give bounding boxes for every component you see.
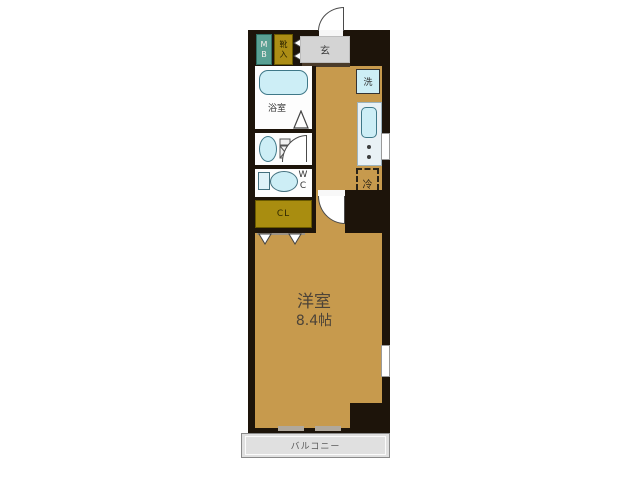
entrance-door-arc-icon: [318, 7, 344, 31]
main-room-label: 洋室: [268, 292, 360, 313]
closet-label: CL: [277, 209, 290, 219]
main-room-size: 8.4帖: [268, 313, 360, 330]
closet-area: CL: [255, 200, 312, 228]
entrance-area: 玄: [300, 36, 350, 63]
toilet-label: WC: [297, 170, 309, 193]
kitchen-sink-icon: [361, 107, 377, 138]
wall-left-column: [312, 66, 316, 233]
kitchen-window: [381, 133, 390, 160]
main-room-label-block: 洋室 8.4帖: [268, 292, 360, 330]
stove-burner-icon: [367, 145, 371, 149]
shoe-cabinet-label: 靴入: [279, 40, 289, 58]
washing-machine-label: 洗: [363, 75, 372, 88]
bathroom-label: 浴室: [258, 101, 296, 114]
balcony-window-sill: [278, 426, 304, 431]
floorplan-canvas: MB 靴入 玄 浴室 WC CL: [0, 0, 640, 480]
washbasin-icon: [259, 136, 277, 162]
room-side-window: [381, 345, 390, 377]
meter-box-label: MB: [260, 40, 269, 58]
wall-corridor-room: [345, 190, 390, 233]
bathtub-icon: [259, 70, 308, 95]
toilet-bowl-icon: [270, 171, 298, 192]
toilet-tank-icon: [258, 172, 270, 190]
refrigerator-label: 冷: [363, 176, 373, 191]
stove-burner-icon: [367, 155, 371, 159]
balcony-inner: バルコニー: [245, 436, 386, 455]
washing-machine-space: 洗: [356, 69, 380, 94]
balcony-window-sill: [315, 426, 341, 431]
entrance-label: 玄: [320, 42, 330, 57]
balcony-label: バルコニー: [291, 439, 341, 452]
meter-box: MB: [256, 34, 272, 65]
closet-door-right-icon: [288, 233, 302, 245]
corner-pillar: [350, 403, 390, 433]
bathroom-door-icon: [293, 110, 309, 129]
closet-door-left-icon: [258, 233, 272, 245]
shoe-cabinet: 靴入: [274, 34, 293, 65]
